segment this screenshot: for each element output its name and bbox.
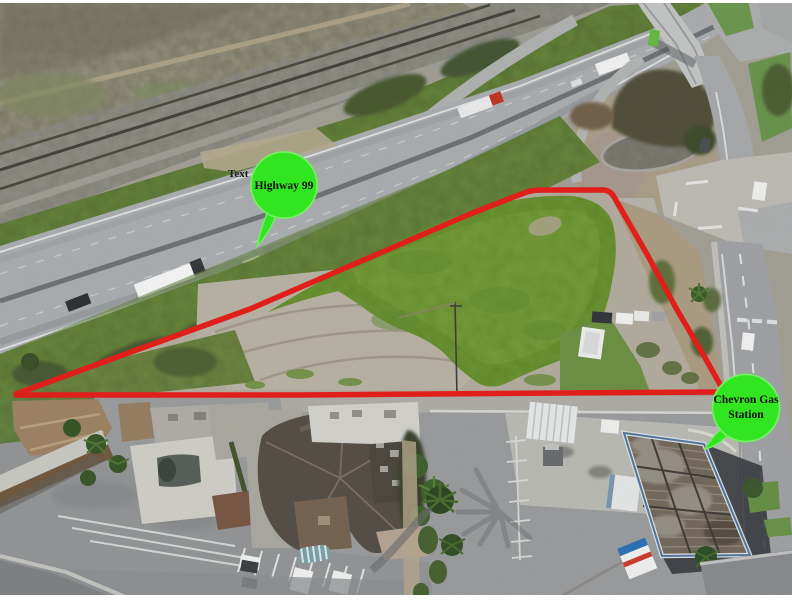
svg-text:Station: Station: [728, 408, 764, 421]
svg-text:Highway 99: Highway 99: [255, 179, 314, 192]
svg-text:Chevron Gas: Chevron Gas: [713, 393, 779, 406]
svg-text:Text: Text: [228, 168, 249, 180]
